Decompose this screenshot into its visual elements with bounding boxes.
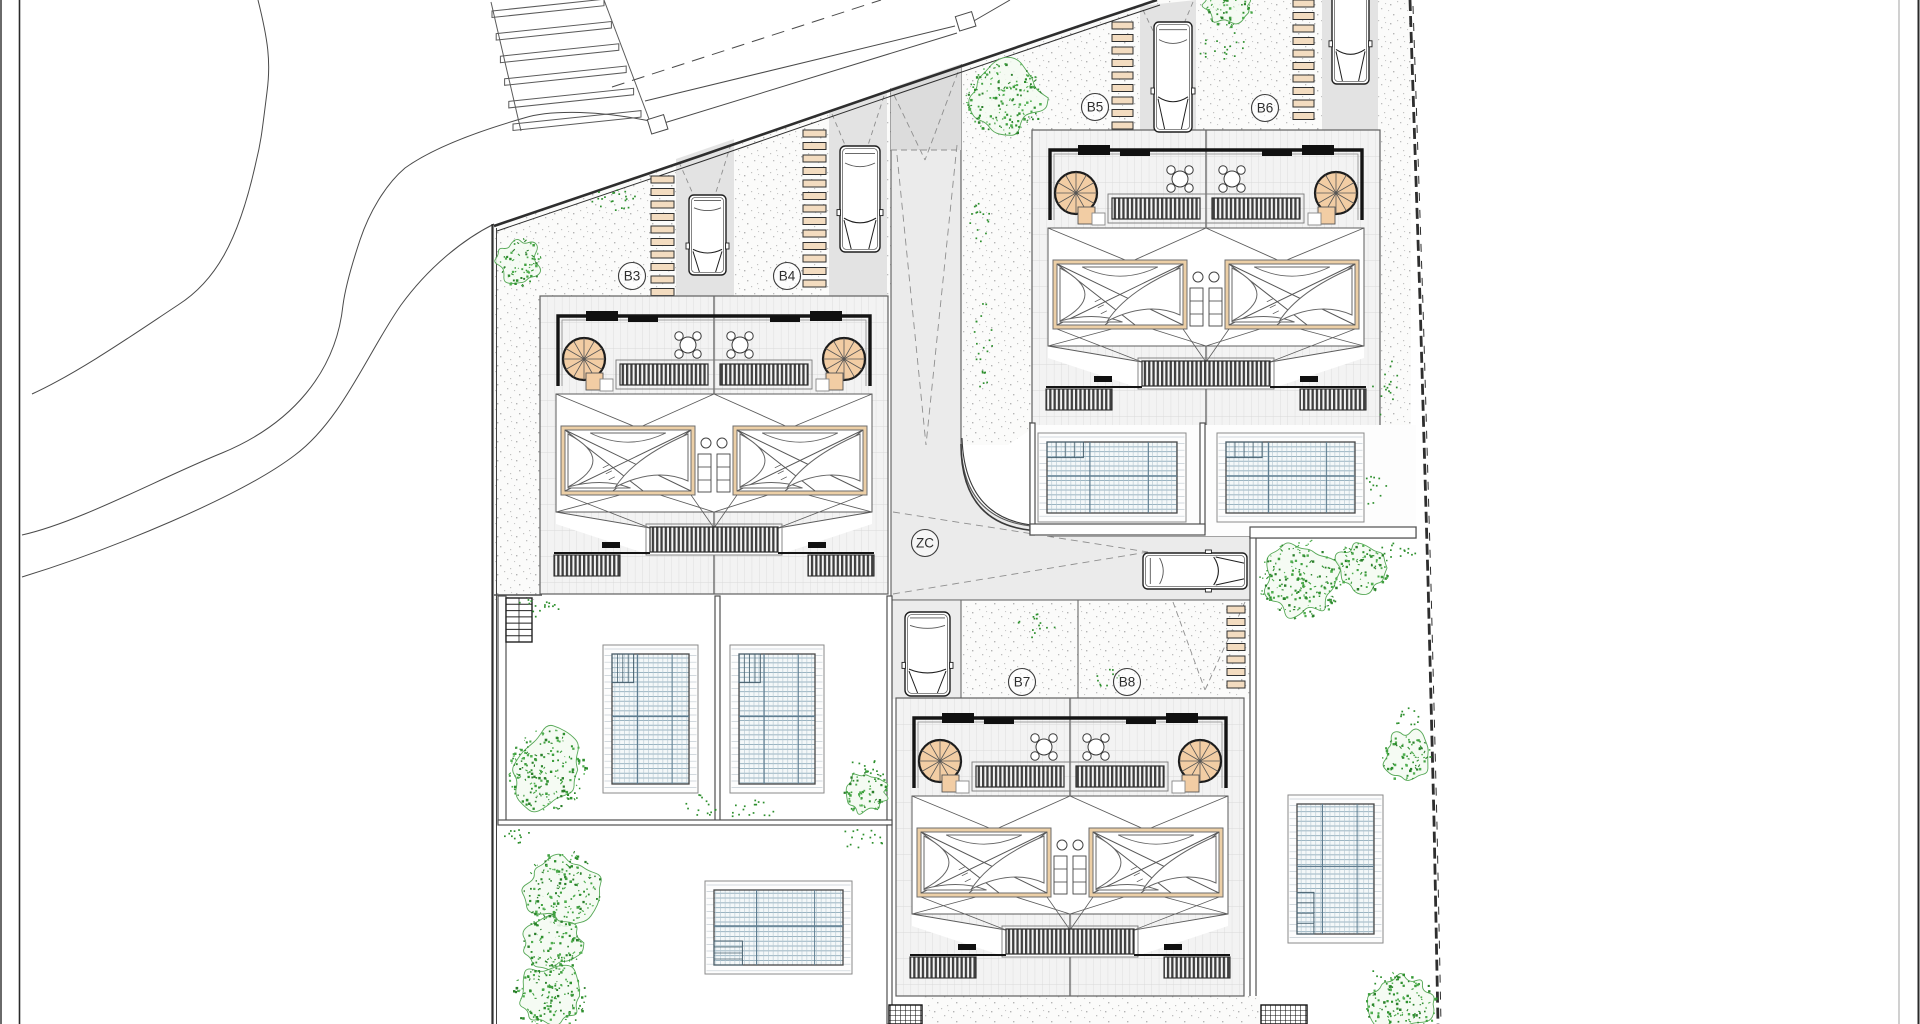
svg-text:B3: B3: [624, 269, 641, 284]
svg-text:B7: B7: [1014, 675, 1031, 690]
svg-text:B6: B6: [1257, 101, 1274, 116]
svg-text:B4: B4: [779, 269, 796, 284]
svg-text:B8: B8: [1119, 675, 1136, 690]
svg-text:ZC: ZC: [916, 536, 934, 551]
svg-text:B5: B5: [1087, 100, 1104, 115]
